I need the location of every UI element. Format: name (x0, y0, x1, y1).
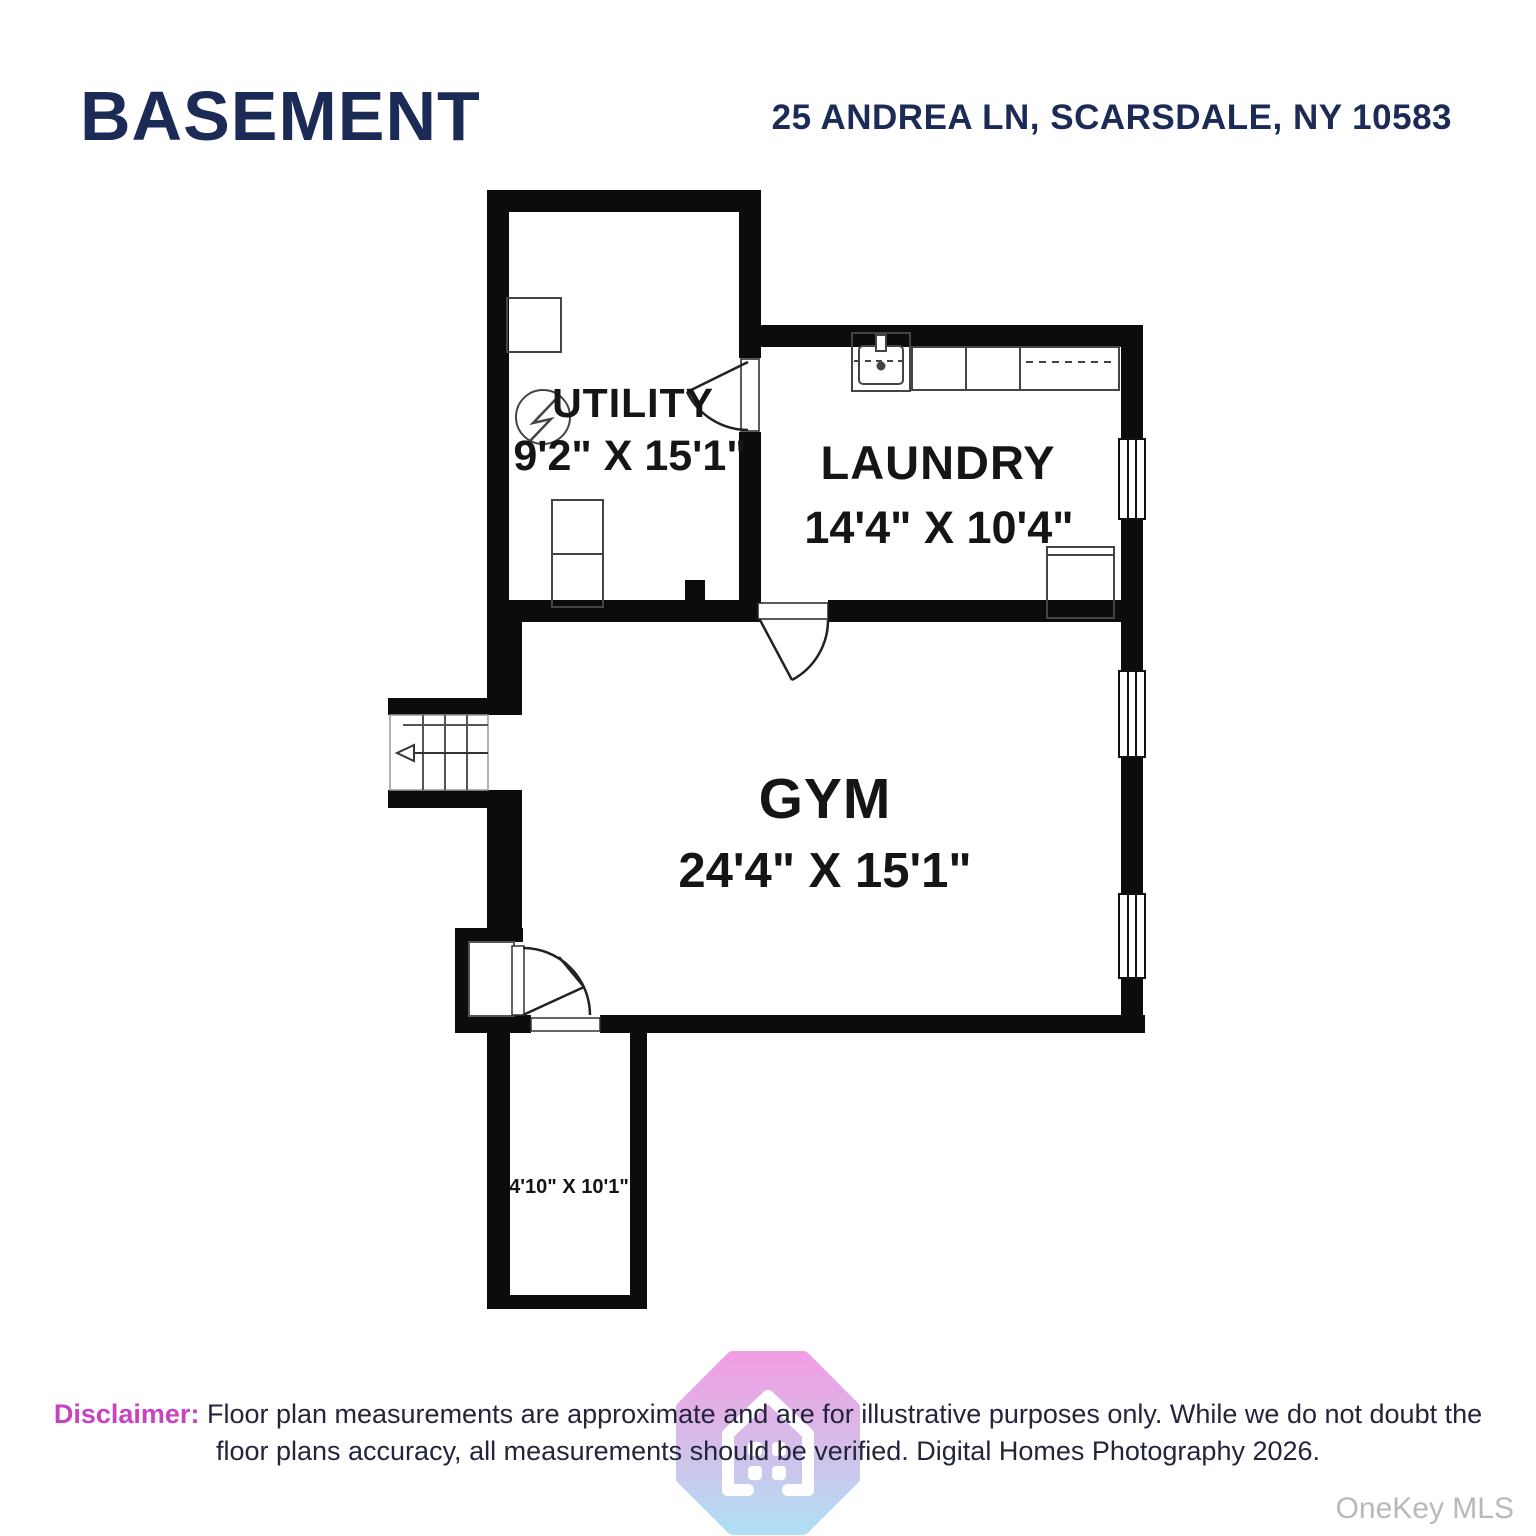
floor-plan-page: BASEMENT 25 ANDREA LN, SCARSDALE, NY 105… (0, 0, 1536, 1536)
window-icon (1119, 439, 1145, 978)
room-dims-gym: 24'4" X 15'1" (678, 844, 971, 898)
laundry-door-swing-icon (758, 603, 828, 680)
disclaimer: Disclaimer: Floor plan measurements are … (0, 1396, 1536, 1470)
floor-plan-drawing: UTILITY 9'2" X 15'1" LAUNDRY 14'4" X 10'… (0, 0, 1536, 1536)
room-label-utility: UTILITY (552, 380, 714, 426)
disclaimer-label: Disclaimer: (54, 1399, 200, 1429)
laundry-counter-icon (912, 347, 1119, 390)
disclaimer-line-2: floor plans accuracy, all measurements s… (0, 1433, 1536, 1470)
disclaimer-line-1: Disclaimer: Floor plan measurements are … (0, 1396, 1536, 1433)
stairs-icon (390, 715, 488, 790)
room-label-laundry: LAUNDRY (820, 436, 1055, 489)
room-dims-laundry: 14'4" X 10'4" (804, 502, 1073, 553)
room-dims-utility: 9'2" X 15'1" (513, 432, 746, 480)
room-dims-hall: 4'10" X 10'1" (509, 1176, 629, 1198)
appliance-icon (552, 500, 603, 554)
mls-watermark: OneKey MLS (1336, 1492, 1514, 1526)
appliance-icon (552, 554, 603, 607)
disclaimer-text-1: Floor plan measurements are approximate … (207, 1399, 1482, 1429)
water-heater-icon (507, 298, 561, 352)
walls (388, 190, 1145, 1309)
room-label-gym: GYM (759, 767, 892, 831)
